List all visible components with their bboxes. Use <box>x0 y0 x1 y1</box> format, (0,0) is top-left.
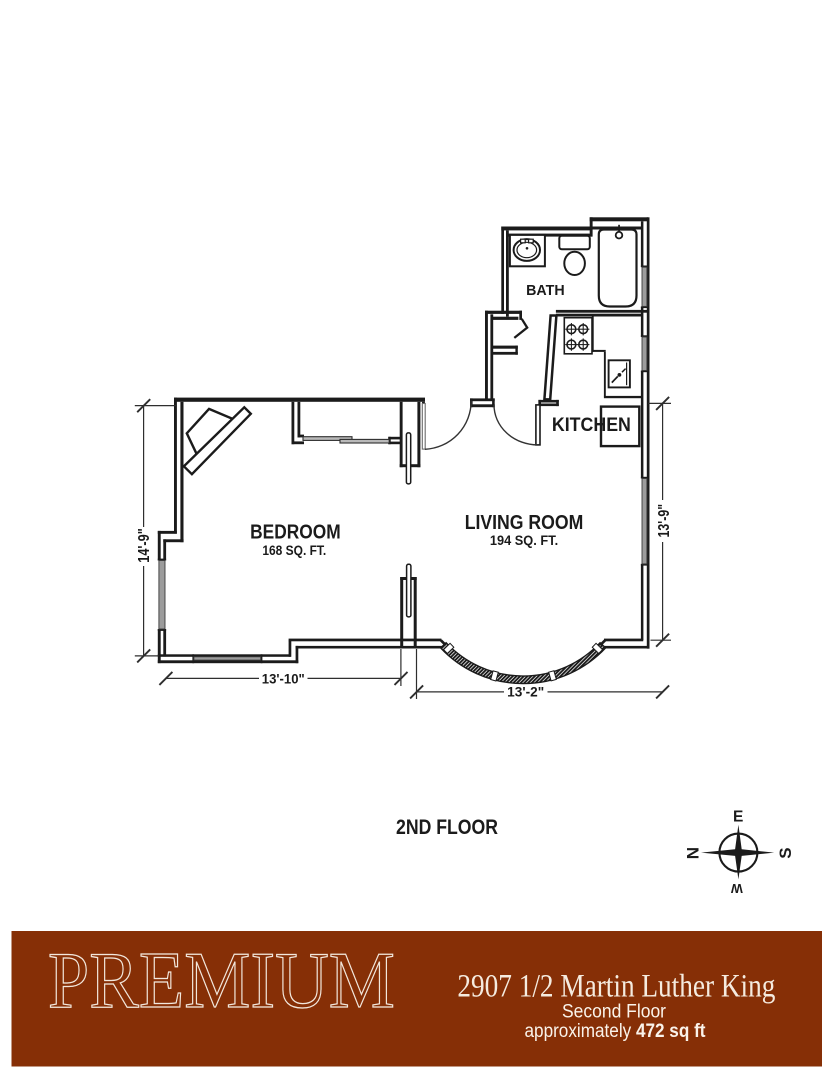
svg-text:2907 1/2 Martin Luther King: 2907 1/2 Martin Luther King <box>457 969 775 1005</box>
svg-text:168 SQ. FT.: 168 SQ. FT. <box>262 542 326 558</box>
svg-text:E: E <box>733 809 743 826</box>
svg-text:13'-9": 13'-9" <box>656 504 673 538</box>
svg-text:KITCHEN: KITCHEN <box>552 415 631 436</box>
svg-text:194 SQ. FT.: 194 SQ. FT. <box>490 532 558 548</box>
svg-text:2ND FLOOR: 2ND FLOOR <box>396 816 498 839</box>
svg-text:13'-10": 13'-10" <box>262 671 305 686</box>
svg-text:W: W <box>731 881 743 895</box>
svg-text:BEDROOM: BEDROOM <box>250 522 341 544</box>
svg-text:S: S <box>776 847 795 858</box>
svg-text:13'-2": 13'-2" <box>507 685 544 700</box>
svg-text:PREMIUM: PREMIUM <box>48 937 395 1025</box>
svg-text:14'-9": 14'-9" <box>136 528 153 563</box>
svg-text:LIVING ROOM: LIVING ROOM <box>465 512 584 534</box>
svg-text:N: N <box>683 847 702 859</box>
svg-text:BATH: BATH <box>526 282 565 299</box>
svg-text:Second Floor: Second Floor <box>562 1002 667 1023</box>
svg-text:approximately 472 sq ft: approximately 472 sq ft <box>525 1021 707 1042</box>
